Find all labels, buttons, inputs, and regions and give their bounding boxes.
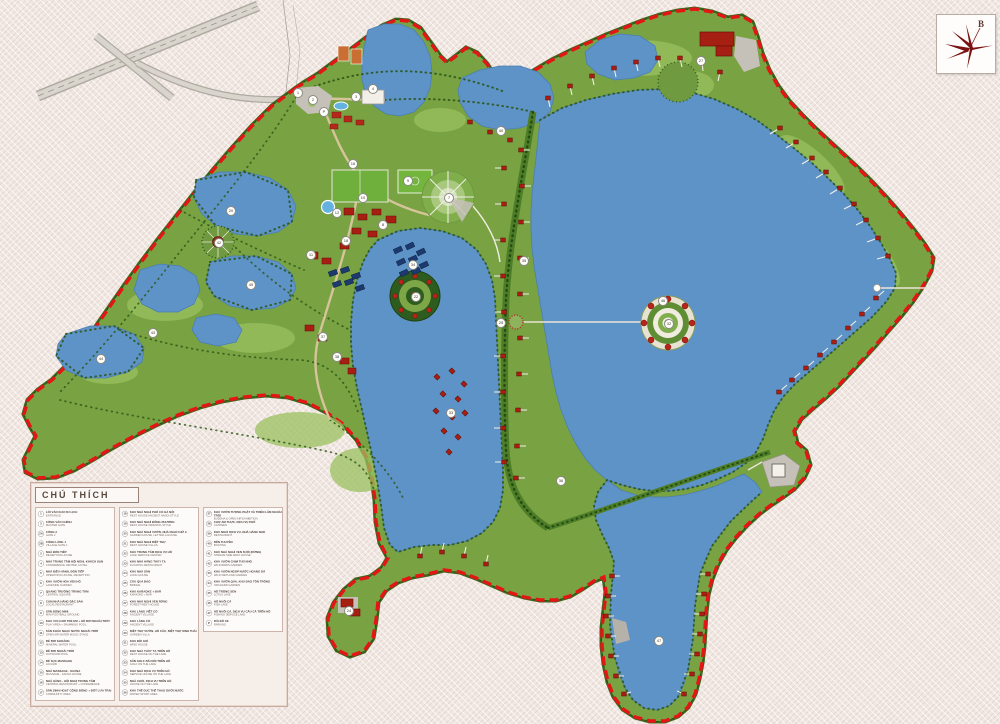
legend-item-label-en: VILLAGE GATE 1 (46, 544, 114, 547)
legend-item-label-en: JACUZZI (46, 663, 114, 666)
legend-item-label-en: LOTUS LAKE (214, 593, 282, 596)
legend-item-label-en: MASSAGE - SAUNA HOUSE (46, 672, 114, 675)
legend-item-label-en: BRIDGE (130, 583, 198, 586)
pier-end-platform (873, 284, 880, 291)
legend-item-label-en: ANCIENT VILLAGE (130, 613, 198, 616)
map-marker-16: 16 (348, 159, 358, 169)
legend-item-number: 3 (38, 551, 44, 557)
legend-item-label-en: GARDEN HOUSE, LETTER-A HOUSE (130, 534, 198, 537)
legend-item: 11SÂN KHẤU NHẠC NƯỚC NGOÀI TRỜIOPEN AIR … (38, 630, 114, 640)
legend-item-number: 18 (122, 511, 128, 517)
legend-item-label-en: MASTER GATE (46, 524, 114, 527)
wetland-pond-5 (192, 314, 242, 346)
legend-item-label-en: REST HOUSE ORIENTAL STYLE (130, 524, 198, 527)
legend-item: 9SÂN BÓNG MINIMINI FOOTBALL GROUND (38, 610, 114, 620)
legend-item: 46HỒ NUÔI CÁFISH LAKE (206, 600, 282, 610)
legend-item-number: 28 (122, 610, 128, 616)
map-marker-9: 9 (403, 176, 413, 186)
legend-item: 7QUẢNG TRƯỜNG TRUNG TÂMCENTRAL SQUARE (38, 590, 114, 600)
legend-item: 28KHU LÀNG VIỆT CỔANCIENT VILLAGE (122, 610, 198, 620)
legend-item: 23KHU NHÀ HÀNG THỦY TẠFLOATING RESTAURAN… (122, 560, 198, 570)
south-lobe-lake (594, 474, 762, 710)
legend-item: 8CỤM NHÀ HÀNG ĐẶC SẢNLOCAL RESTAURANT (38, 600, 114, 610)
legend-item: 3NHÀ ĐÓN TIẾPRECEPTION HOUSE (38, 550, 114, 560)
legend-item: 2ACỔNG 2GATE 2 (38, 530, 114, 540)
legend-item-label-en: FLOATING RESTAURANT (130, 563, 198, 566)
legend-item-label-en: WILD BIRDS GARDEN (214, 563, 282, 566)
legend-item: 44KHU VƯỜN QUẢ, KHU BẢO TỒN TRỒNGORCHARD… (206, 580, 282, 590)
legend-item: 25CẦU QUA ĐẢOBRIDGE (122, 580, 198, 590)
legend-item-number: 33 (122, 660, 128, 666)
legend-item: 13BỂ BƠI NGOÀI TRỜIOUTDOOR POOL (38, 649, 114, 659)
legend-item: 20KHU NHÀ NGHỈ VƯỜN, NHÀ NGHỈ CHỮ AGARDE… (122, 530, 198, 540)
legend-item-number: 13 (38, 650, 44, 656)
legend-item-number: 7 (38, 590, 44, 596)
legend-item-label-en: PLAY AREA + SWIMMING POOL (46, 623, 114, 626)
legend-item-label-en: RESTAURANT (214, 534, 282, 537)
map-marker-1: 1 (293, 88, 303, 98)
legend-item: 33SÂN GOLF BÃI NỔI TRÊN HỒGOLF ON THE LA… (122, 659, 198, 669)
legend-item: 26KHU KARAOKE + BARKARAOKE + BAR (122, 590, 198, 600)
map-marker-11: 11 (306, 250, 316, 260)
legend-item-number: 2A (38, 531, 44, 537)
map-marker-37: 37 (318, 332, 328, 342)
map-marker-43: 43 (148, 328, 158, 338)
legend-item: 15NHÀ MASSAGE - SAUNAMASSAGE - SAUNA HOU… (38, 669, 114, 679)
legend-item-number: 19 (122, 521, 128, 527)
compass-north-label: B (978, 19, 984, 29)
legend-item-number: 43 (206, 570, 212, 576)
southwest-island (338, 597, 630, 644)
legend-item-label-en: HOUSE ON THE LAKE (130, 682, 198, 685)
legend-item-number: 11 (38, 630, 44, 636)
map-marker-10: 10 (358, 193, 368, 203)
legend-item-label-en: WIND HOUSE (130, 643, 198, 646)
legend-item: 2BCỔNG LÀNG 1VILLAGE GATE 1 (38, 540, 114, 550)
map-marker-27: 27 (696, 56, 706, 66)
legend-item: 14BỂ SỤC MASSAGEJACUZZI (38, 659, 114, 669)
map-marker-4: 4 (368, 84, 378, 94)
legend-item-number: P (206, 620, 212, 626)
legend-item: 29KHU LÀNG CỔANCIENT VILLAGE (122, 620, 198, 630)
legend-item-label-en: RECEPTION HOUSE (46, 553, 114, 556)
legend-item-number: 20 (122, 531, 128, 537)
legend-item-number: 35 (122, 680, 128, 686)
legend-item: 5NHÀ ĐIỀU HÀNH, ĐÓN TIẾPOPERATION HOUSE,… (38, 570, 114, 580)
legend-item-label-en: ENTRANCE (46, 514, 114, 517)
legend-item: 19KHU NHÀ NGHỈ ĐÔNG PHƯƠNGREST HOUSE ORI… (122, 520, 198, 530)
map-marker-45: 45 (246, 280, 256, 290)
legend-item-number: 44 (206, 580, 212, 586)
legend-item-label-en: PARKING (214, 623, 282, 626)
legend-item-number: 27 (122, 600, 128, 606)
legend-item: 36KHU THỂ DỤC THỂ THAO DƯỚI NƯỚCWATER SP… (122, 689, 198, 699)
legend-columns: 1LỐI VÀO KHU DU LỊCHENTRANCE2CỔNG VÀO CH… (35, 507, 283, 701)
map-marker-38: 38 (332, 352, 342, 362)
legend-item-label-en: LAKE SERVICE CENTER (130, 553, 198, 556)
legend-item-number: 24 (122, 570, 128, 576)
map-marker-34: 34 (408, 260, 418, 270)
legend-item-number: 5 (38, 570, 44, 576)
legend-item-label-en: FISHING SERVICE LAKE (214, 613, 282, 616)
compass-rose: B (936, 14, 996, 74)
legend-column-2: 18KHU NHÀ NGHỈ PHỐ CỔ HÀ NỘIREST HOUSE A… (119, 507, 199, 701)
legend-item: 43KHU VƯỜN NGẬP NƯỚC HOANG DÃWILD WETLAN… (206, 570, 282, 580)
legend-item: 30BIỆT THỰ VƯỜN, HỒ CÂU, BIỆT THỰ SINH T… (122, 630, 198, 640)
legend-item: 16NHÀ HÀNG - HỘI NGHỊ TRUNG TÂMCENTRAL R… (38, 679, 114, 689)
legend-item-number: 34 (122, 670, 128, 676)
map-marker-46: 46 (658, 296, 668, 306)
legend-item: 35NHÀ CHÒI, DỊCH VỤ TRÊN HỒHOUSE ON THE … (122, 679, 198, 689)
legend-item-label-en: OUTDOOR POOL (46, 653, 114, 656)
legend-item-number: 9 (38, 610, 44, 616)
legend-item-label-en: ANCIENT VILLAGE (130, 623, 198, 626)
legend-item-number: 42 (206, 560, 212, 566)
legend-item-label-en: BOATING (214, 544, 282, 547)
legend-item: 4NHÀ TRUNG TÂM HỘI NGHỊ, KHÁCH SẠNCONFER… (38, 560, 114, 570)
legend-item: 6KHU VƯỜN HOA VEN HỒLAKESIDE GARDEN (38, 580, 114, 590)
legend-item-label-en: CENTRAL RESTAURANT + CONFERENCE (46, 682, 114, 685)
map-marker-22: 22 (411, 292, 421, 302)
legend-item: 12BỂ BƠI KHOÁNGMINERAL WATER POOL (38, 640, 114, 650)
map-marker-20: 20 (226, 206, 236, 216)
legend-item-number: 17 (38, 689, 44, 695)
legend-item-label-en: COMMUNITY AREA (46, 692, 114, 695)
legend-item: 2CỔNG VÀO CHÍNHMASTER GATE (38, 520, 114, 530)
map-marker-25: 25 (496, 318, 506, 328)
legend-item-number: 32 (122, 650, 128, 656)
legend-item-label-en: REST HOUSE VILLAS (130, 544, 198, 547)
map-marker-12: 12 (332, 208, 342, 218)
legend-item: 41KHU NHÀ NGHỈ VEN SUỐI (RỪNG)STREAM SID… (206, 550, 282, 560)
legend-item-label-en: OPEN AIR WATER MUSIC STAGE (46, 633, 114, 636)
legend-item-number: 2 (38, 521, 44, 527)
legend-item-number: 22 (122, 551, 128, 557)
legend-item: 27KHU NHÀ NGHỈ VEN RỪNGFOREST REST HOUSE (122, 600, 198, 610)
legend-item-number: 26 (122, 590, 128, 596)
legend-item-number: 8 (38, 600, 44, 606)
legend-item-label-en: REST HOUSE ANCIENT HANOI STYLE (130, 514, 198, 517)
legend-item-number: 37 (206, 511, 212, 517)
map-marker-44: 44 (96, 354, 106, 364)
legend-item-number: 45 (206, 590, 212, 596)
legend-item-number: 23 (122, 560, 128, 566)
causeway-node (509, 315, 523, 329)
legend-item-label-en: STREAM SIDE REST HOUSE (214, 553, 282, 556)
legend-item-number: 46 (206, 600, 212, 606)
legend-item-label-en: ORCHARD GARDEN (214, 583, 282, 586)
legend-panel: CHÚ THÍCH 1LỐI VÀO KHU DU LỊCHENTRANCE2C… (30, 482, 288, 707)
map-marker-7: 7 (444, 193, 454, 203)
map-marker-35: 35 (519, 256, 529, 266)
legend-item-label-en: MINI FOOTBALL GROUND (46, 613, 114, 616)
legend-item-number: 47 (206, 610, 212, 616)
legend-item-number: 36 (122, 689, 128, 695)
map-marker-40: 40 (496, 126, 506, 136)
legend-item-label-en: KARAOKE + BAR (130, 593, 198, 596)
legend-item: 17SÂN SINH HOẠT CỘNG ĐỒNG + ĐỐT LỬA TRẠI… (38, 689, 114, 699)
legend-item-number: 31 (122, 640, 128, 646)
legend-item-label-en: LONG HOUSE (130, 573, 198, 576)
legend-item-label-en: WATER SPORT AREA (130, 692, 198, 695)
legend-item-number: 2B (38, 541, 44, 547)
legend-item-number: 10 (38, 620, 44, 626)
legend-item: 31KHU ĐỒI GIÓWIND HOUSE (122, 640, 198, 650)
legend-item-number: 41 (206, 551, 212, 557)
map-marker-42: 42 (214, 238, 224, 248)
legend-item-number: 6 (38, 580, 44, 586)
legend-item: 1LỐI VÀO KHU DU LỊCHENTRANCE (38, 511, 114, 521)
map-marker-33: 33 (446, 408, 456, 418)
legend-item-number: 21 (122, 541, 128, 547)
legend-item: 32KHU NHÀ THỦY TẠ TRÊN HỒREST HOUSE ON T… (122, 649, 198, 659)
legend-title: CHÚ THÍCH (35, 487, 139, 503)
legend-column-1: 1LỐI VÀO KHU DU LỊCHENTRANCE2CỔNG VÀO CH… (35, 507, 115, 701)
legend-item-number: 30 (122, 630, 128, 636)
legend-item-number: 40 (206, 541, 212, 547)
legend-item-label-en: FISH LAKE (214, 603, 282, 606)
legend-item-label-en: MINERAL WATER POOL (46, 643, 114, 646)
legend-item-number: 12 (38, 640, 44, 646)
legend-item-label-en: SERVICE HOUSE ON THE LAKE (130, 672, 198, 675)
legend-item-number: 29 (122, 620, 128, 626)
legend-item: 45HỒ TRỒNG SENLOTUS LAKE (206, 590, 282, 600)
legend-item-label-en: CONFERENCE CENTER, HOTEL (46, 563, 114, 566)
legend-item-number: 15 (38, 670, 44, 676)
legend-item: 34KHU NHÀ DỊCH VỤ TRÊN HỒSERVICE HOUSE O… (122, 669, 198, 679)
legend-item: 18KHU NHÀ NGHỈ PHỐ CỔ HÀ NỘIREST HOUSE A… (122, 511, 198, 521)
legend-item-label-en: GOLF ON THE LAKE (130, 663, 198, 666)
legend-item: PBÃI ĐỖ XEPARKING (206, 620, 282, 630)
map-marker-3: 3 (351, 92, 361, 102)
map-marker-36: 36 (556, 476, 566, 486)
legend-item-number: 38 (206, 521, 212, 527)
map-marker-18: 18 (341, 236, 351, 246)
legend-item: 42KHU VƯỜN CHIM THÚ NHỎWILD BIRDS GARDEN (206, 560, 282, 570)
legend-item-label-en: LOCAL RESTAURANT (46, 603, 114, 606)
legend-item-number: 4 (38, 560, 44, 566)
map-marker-32: 32 (664, 319, 674, 329)
legend-item: 39KHU NGHỈ DỊCH VỤ, NHÀ HÀNG NHỎRESTAURA… (206, 530, 282, 540)
legend-item-label-en: WILD WETLAND GARDEN (214, 573, 282, 576)
legend-item: 22KHU TRUNG TÂM DỊCH VỤ HỒLAKE SERVICE C… (122, 550, 198, 560)
legend-item: 21KHU NHÀ NGHỈ BIỆT THỰREST HOUSE VILLAS (122, 540, 198, 550)
legend-item: 37KHU VƯỜN TƯỢNG PHẬT VÀ TRIỂN LÃM NGOÀI… (206, 511, 282, 521)
legend-item-number: 14 (38, 660, 44, 666)
legend-item: 47HỒ NUÔI CÁ, DỊCH VỤ CÂU CÁ TRÊN HỒFISH… (206, 610, 282, 620)
legend-item: 38CHỢ ẨM THỰC, DỊCH VỤ PHỐCANTEEN (206, 520, 282, 530)
map-marker-47: 47 (654, 636, 664, 646)
map-marker-8: 8 (378, 220, 388, 230)
legend-item-label-en: OPERATION HOUSE, RECEPTION (46, 573, 114, 576)
compass-star-icon: B (937, 15, 995, 73)
legend-item: 10KHU VUI CHƠI TRẺ EM + HỒ BƠI NGOÀI TRỜ… (38, 620, 114, 630)
map-marker-P: P (319, 107, 329, 117)
legend-item-number: 1 (38, 511, 44, 517)
legend-item-label-en: CENTRAL SQUARE (46, 593, 114, 596)
map-marker-24: 24 (344, 606, 354, 616)
legend-item-number: 25 (122, 580, 128, 586)
legend-item-label-en: LAKESIDE GARDEN (46, 583, 114, 586)
legend-item-label-en: FOREST REST HOUSE (130, 603, 198, 606)
legend-item: 24KHU NHÀ SÀNLONG HOUSE (122, 570, 198, 580)
map-marker-2: 2 (308, 95, 318, 105)
masterplan-canvas: 12P3440169710128111837382042454344462225… (0, 0, 1000, 724)
legend-item-label-en: GATE 2 (46, 534, 114, 537)
legend-column-3: 37KHU VƯỜN TƯỢNG PHẬT VÀ TRIỂN LÃM NGOÀI… (203, 507, 283, 632)
legend-item-label-en: CANTEEN (214, 524, 282, 527)
legend-item: 40BẾN THUYỀNBOATING (206, 540, 282, 550)
legend-item-label-en: GARDEN VILLA (130, 633, 198, 636)
legend-item-number: 39 (206, 531, 212, 537)
legend-item-number: 16 (38, 680, 44, 686)
legend-item-label-en: REST HOUSE ON THE LAKE (130, 653, 198, 656)
